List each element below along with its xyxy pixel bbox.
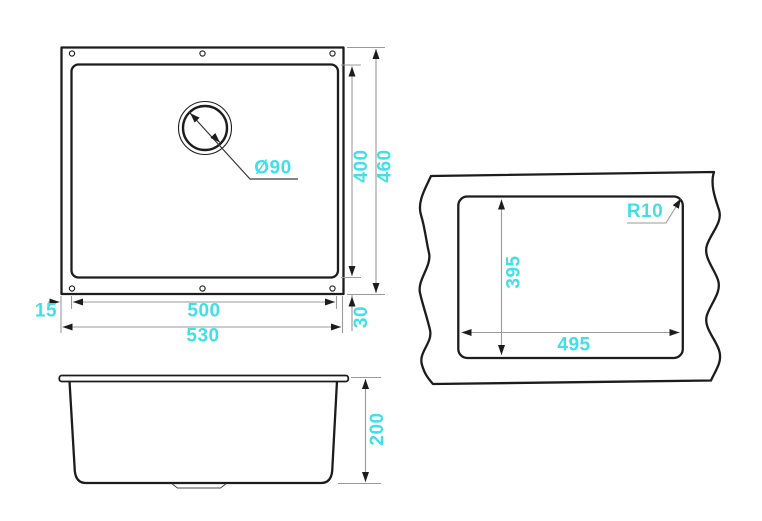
dim-label-depth: 200 [367, 412, 388, 445]
mounting-hole [330, 51, 335, 56]
mounting-hole [69, 51, 74, 56]
mounting-hole [330, 286, 335, 291]
dim-label-inner-height: 400 [351, 149, 372, 182]
dim-label-outer-width: 530 [186, 326, 219, 347]
mounting-hole [200, 286, 205, 291]
dim-label-inner-width: 500 [187, 301, 220, 322]
side-view: 200 [59, 376, 388, 489]
dim-label-cutout-height: 395 [504, 255, 525, 288]
mounting-hole [69, 286, 74, 291]
dim-label-rim-bottom: 30 [351, 306, 372, 328]
mounting-hole [200, 51, 205, 56]
side-bowl-outline [70, 381, 338, 483]
sink-technical-drawing: Ø90 400 460 30 500 530 15 [0, 0, 762, 521]
dim-label-outer-height: 460 [375, 149, 396, 182]
dim-label-cutout-width: 495 [557, 335, 590, 356]
dim-label-corner-radius: R10 [627, 201, 663, 222]
side-drain-recess [172, 484, 226, 488]
plan-view: Ø90 400 460 30 500 530 15 [35, 48, 396, 347]
drawing-canvas: Ø90 400 460 30 500 530 15 [0, 0, 762, 521]
plan-bowl-outline [72, 65, 339, 278]
dim-label-rim-left: 15 [35, 301, 57, 322]
dim-label-drain-diameter: Ø90 [254, 158, 291, 179]
side-flange [59, 376, 348, 382]
cutout-view: 395 495 R10 [420, 172, 720, 384]
